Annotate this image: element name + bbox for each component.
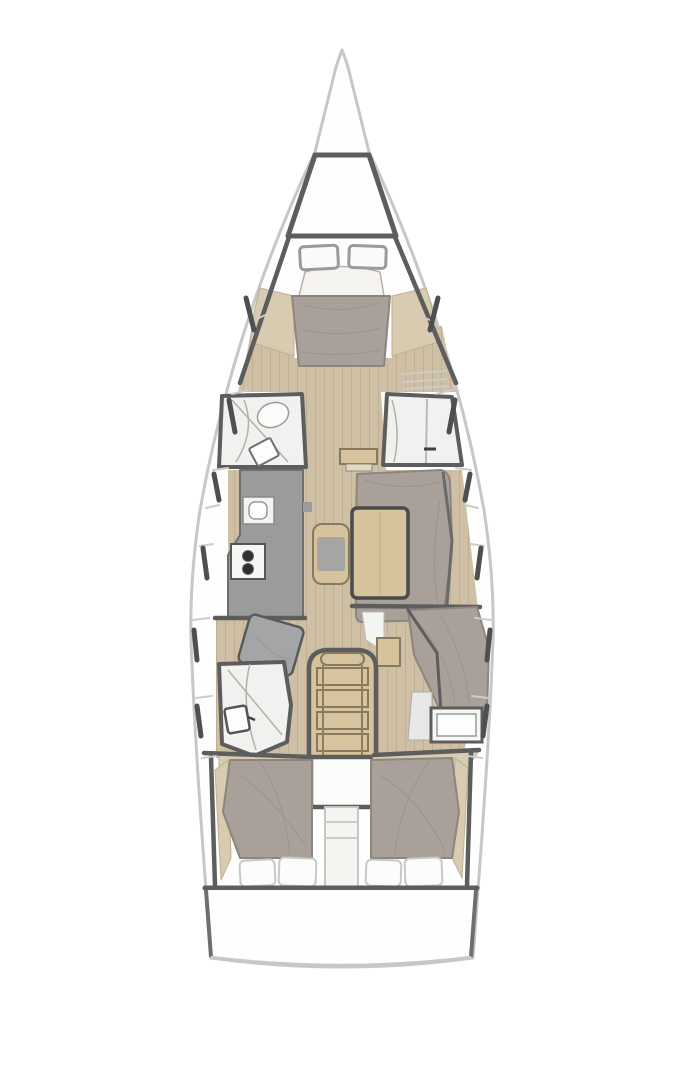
stair-step — [317, 668, 368, 685]
floorplan-svg — [0, 0, 697, 1080]
stove-burner — [243, 551, 254, 562]
toilet-icon — [224, 705, 250, 733]
galley-sink-icon — [249, 502, 267, 519]
stair-step — [317, 734, 368, 751]
anchor-locker-outline — [288, 155, 396, 236]
foredeck — [288, 155, 396, 236]
aft-cabinet — [377, 638, 400, 666]
deck-hatch-port — [299, 245, 338, 270]
hull-window — [487, 630, 490, 660]
stair-step — [317, 690, 368, 707]
aft-cabin-port — [204, 753, 316, 887]
companionway — [309, 650, 376, 760]
engine-box — [311, 757, 374, 807]
pillow — [279, 857, 317, 886]
locker — [408, 692, 432, 740]
sideboard-step — [346, 464, 372, 471]
shower-partition — [426, 399, 427, 463]
aft-cabin-starboard — [366, 750, 479, 887]
hull-window — [194, 630, 197, 660]
aft-head — [219, 662, 291, 756]
stair-step — [317, 712, 368, 729]
pillow — [405, 857, 443, 886]
yacht-floorplan-image — [0, 0, 697, 1080]
stair-landing — [321, 653, 364, 665]
transom-deck — [206, 890, 476, 957]
bench-cushion — [317, 537, 345, 571]
deck-hatch-starboard — [349, 245, 387, 268]
transom — [205, 888, 477, 965]
galley — [228, 470, 312, 618]
sideboard — [340, 449, 377, 464]
berth-headboard — [299, 267, 384, 297]
starboard-aft-berth — [371, 758, 459, 858]
pillow — [239, 859, 275, 887]
aft-corridor — [325, 807, 358, 888]
counter-tab — [303, 502, 312, 512]
stove-burner — [243, 564, 254, 575]
pillow — [366, 859, 402, 886]
vanity-sink — [437, 714, 476, 736]
